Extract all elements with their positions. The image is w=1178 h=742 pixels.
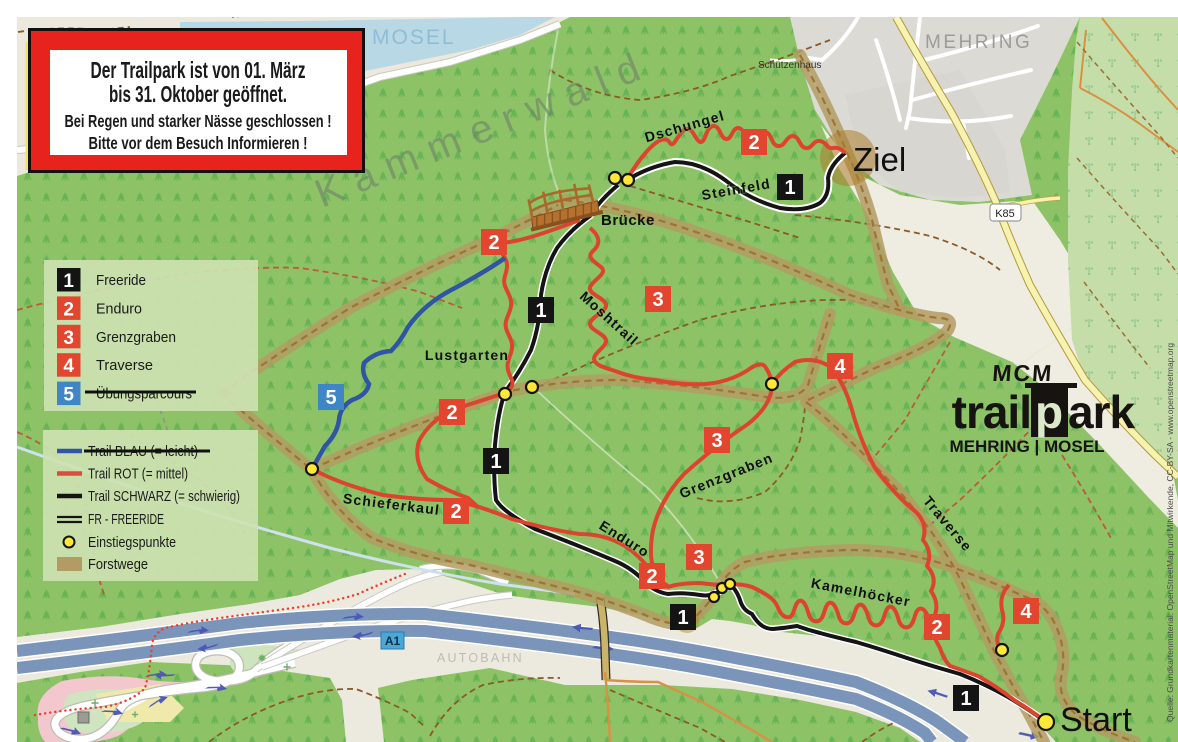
svg-text:Freeride: Freeride	[96, 272, 146, 289]
svg-text:trail: trail	[952, 386, 1031, 438]
svg-text:2: 2	[488, 232, 499, 254]
svg-text:ark: ark	[1068, 386, 1135, 438]
svg-text:Übungsparcours: Übungsparcours	[96, 385, 192, 403]
svg-text:2: 2	[63, 299, 74, 320]
svg-text:Bitte vor dem Besuch Informier: Bitte vor dem Besuch Informieren !	[89, 133, 308, 153]
svg-text:Start: Start	[1060, 701, 1132, 739]
svg-text:Lustgarten: Lustgarten	[425, 347, 509, 363]
svg-text:2: 2	[931, 617, 942, 639]
svg-text:Trail SCHWARZ (= schwierig): Trail SCHWARZ (= schwierig)	[88, 489, 240, 505]
svg-text:MEHRING: MEHRING	[925, 32, 1032, 53]
svg-text:5: 5	[325, 387, 336, 409]
svg-text:5: 5	[63, 385, 74, 406]
svg-text:4: 4	[63, 356, 74, 377]
svg-text:4: 4	[834, 356, 846, 378]
svg-text:Trail ROT (= mittel): Trail ROT (= mittel)	[88, 467, 188, 483]
svg-text:bis 31. Oktober geöffnet.: bis 31. Oktober geöffnet.	[109, 81, 287, 107]
svg-text:1: 1	[490, 451, 501, 473]
svg-text:1: 1	[960, 688, 971, 710]
svg-text:Traverse: Traverse	[96, 357, 153, 374]
svg-text:p: p	[1035, 386, 1063, 438]
svg-text:MOSEL: MOSEL	[372, 26, 456, 49]
svg-text:1: 1	[535, 300, 546, 322]
svg-text:2: 2	[748, 132, 759, 154]
svg-text:1: 1	[63, 271, 74, 292]
svg-text:Grenzgraben: Grenzgraben	[96, 329, 176, 346]
svg-text:3: 3	[711, 430, 722, 452]
svg-text:2: 2	[450, 501, 461, 523]
svg-text:Bei Regen und starker Nässe ge: Bei Regen und starker Nässe geschlossen …	[65, 111, 332, 131]
svg-text:2: 2	[446, 402, 457, 424]
svg-text:Der Trailpark ist von 01. März: Der Trailpark ist von 01. März	[91, 57, 306, 83]
svg-text:A1: A1	[385, 634, 401, 648]
svg-text:1: 1	[677, 607, 688, 629]
svg-text:FR - FREERIDE: FR - FREERIDE	[88, 512, 164, 528]
svg-text:Einstiegspunkte: Einstiegspunkte	[88, 535, 176, 551]
svg-text:AUTOBAHN: AUTOBAHN	[437, 651, 524, 665]
svg-text:3: 3	[63, 328, 74, 349]
svg-text:2: 2	[646, 566, 657, 588]
svg-text:MCM: MCM	[992, 360, 1055, 386]
svg-text:3: 3	[652, 289, 663, 311]
svg-text:3: 3	[693, 547, 704, 569]
svg-text:K85: K85	[995, 208, 1015, 220]
svg-text:Quelle: Grundkartenmaterial: O: Quelle: Grundkartenmaterial: OpenStreetM…	[1165, 343, 1175, 722]
svg-text:4: 4	[1020, 601, 1032, 623]
svg-text:1: 1	[784, 177, 795, 199]
svg-text:Forstwege: Forstwege	[88, 557, 148, 573]
svg-text:Brücke: Brücke	[601, 212, 655, 229]
svg-text:Enduro: Enduro	[96, 300, 142, 317]
svg-text:MEHRING | MOSEL: MEHRING | MOSEL	[950, 437, 1105, 456]
svg-text:Schützenhaus: Schützenhaus	[758, 60, 821, 71]
svg-text:Ziel: Ziel	[853, 141, 906, 178]
